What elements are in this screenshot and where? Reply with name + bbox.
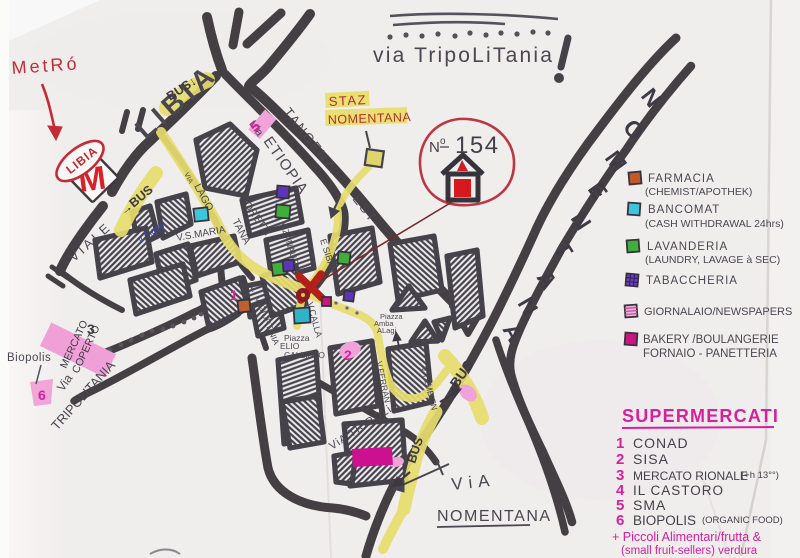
svg-text:BIOPOLIS: BIOPOLIS [633,513,696,528]
svg-text:MERCATO RIONALE: MERCATO RIONALE [633,469,748,483]
svg-text:+ Piccoli Alimentari/frutta &: + Piccoli Alimentari/frutta & [612,530,762,544]
svg-text:(+h 13°°): (+h 13°°) [741,470,779,481]
svg-text:LAVANDERIA: LAVANDERIA [647,241,728,253]
svg-text:(CHEMIST/APOTHEK): (CHEMIST/APOTHEK) [645,186,752,198]
svg-text:o: o [440,136,446,147]
svg-text:FORNAIO - PANETTERIA: FORNAIO - PANETTERIA [643,348,777,360]
svg-text:Biopolis: Biopolis [7,352,51,364]
svg-text:(CASH WITHDRAWAL 24hrs): (CASH WITHDRAWAL 24hrs) [645,218,784,230]
svg-text:GIORNALAIO/NEWSPAPERS: GIORNALAIO/NEWSPAPERS [644,306,792,318]
svg-text:CONAD: CONAD [633,435,689,451]
svg-text:1: 1 [616,435,624,452]
svg-text:(small fruit-sellers) verdura: (small fruit-sellers) verdura [621,545,758,557]
svg-text:(LAUNDRY, LAVAGE à SEC): (LAUNDRY, LAVAGE à SEC) [645,254,780,266]
svg-text:ALagi: ALagi [377,326,397,335]
svg-text:STAZ: STAZ [328,92,367,109]
svg-text:NOMENTANA: NOMENTANA [328,110,412,127]
svg-text:via TripoLiTania: via TripoLiTania [373,44,554,67]
svg-text:1: 1 [230,287,238,303]
svg-text:SUPERMERCATI: SUPERMERCATI [622,406,779,426]
svg-text:6: 6 [616,512,624,529]
svg-text:CALLISTO: CALLISTO [284,350,325,360]
svg-text:(ORGANIC FOOD): (ORGANIC FOOD) [702,515,783,526]
svg-text:TABACCHERIA: TABACCHERIA [646,275,738,287]
svg-text:2: 2 [344,347,352,363]
svg-text:NOMENTANA: NOMENTANA [437,508,552,525]
svg-text:SMA: SMA [633,497,666,513]
svg-text:BANCOMAT: BANCOMAT [648,204,720,216]
svg-text:2: 2 [616,451,624,468]
svg-text:6: 6 [38,387,46,403]
svg-text:N: N [429,139,440,156]
svg-text:SISA: SISA [633,451,669,467]
svg-text:FARMACIA: FARMACIA [648,173,715,185]
svg-text:BAKERY /BOULANGERIE: BAKERY /BOULANGERIE [643,334,779,346]
svg-text:IL CASTORO: IL CASTORO [633,483,724,498]
